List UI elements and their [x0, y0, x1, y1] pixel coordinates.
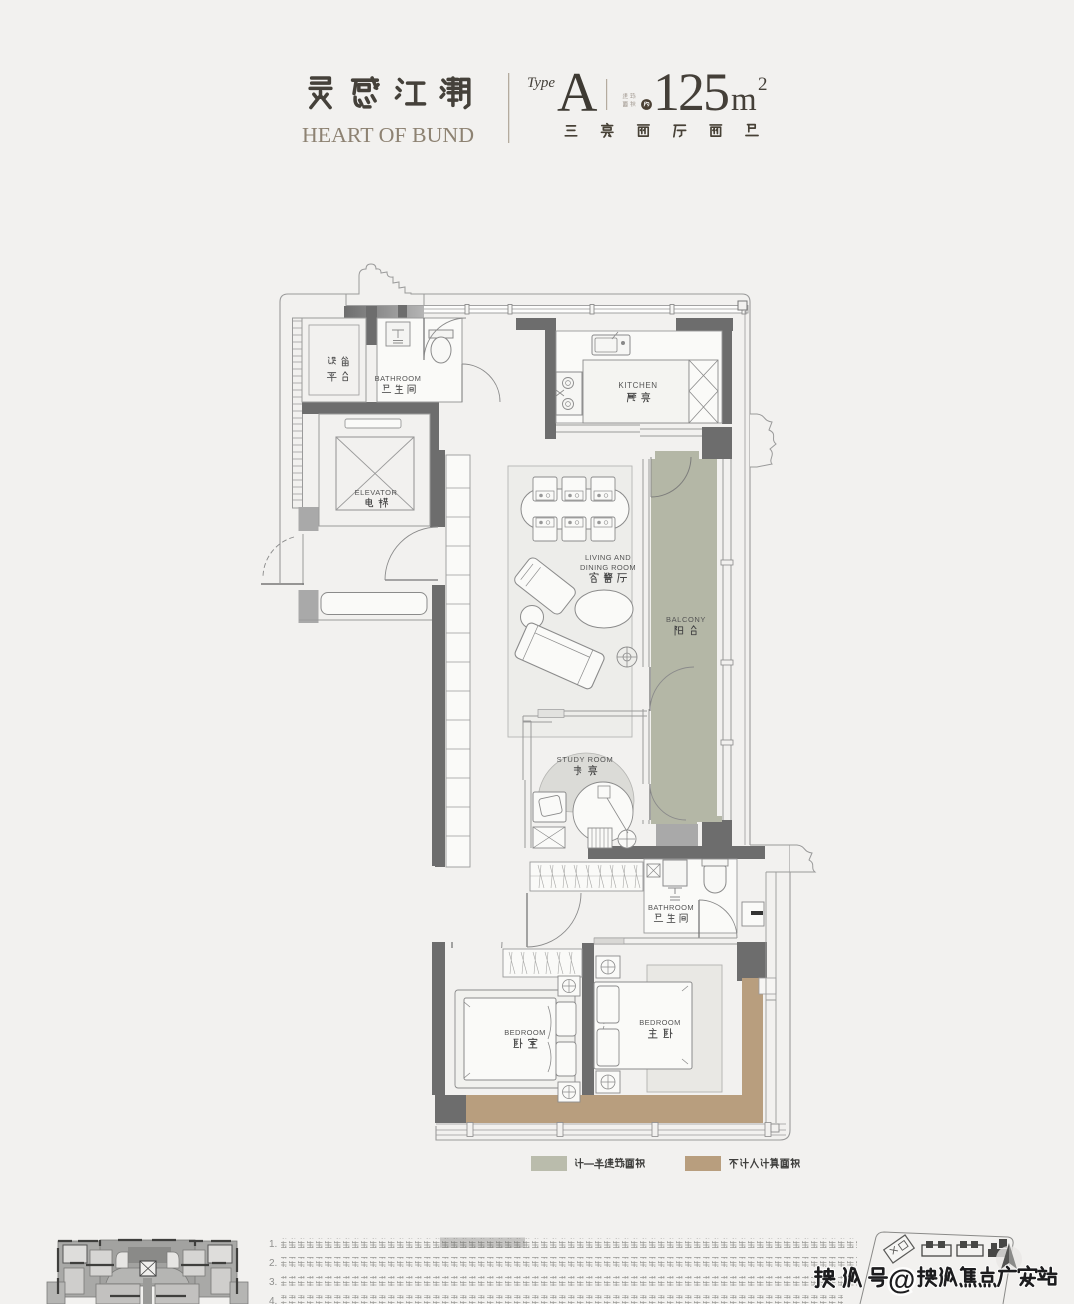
svg-text:BATHROOM: BATHROOM	[375, 374, 422, 383]
svg-text:3.: 3.	[269, 1277, 277, 1288]
svg-text:KITCHEN: KITCHEN	[618, 381, 657, 390]
svg-text:BATHROOM: BATHROOM	[648, 903, 694, 912]
svg-text:2.: 2.	[269, 1258, 277, 1269]
svg-text:2: 2	[758, 74, 768, 95]
svg-text:ELEVATOR: ELEVATOR	[355, 488, 398, 497]
svg-text:A: A	[557, 62, 598, 124]
svg-text:1.: 1.	[269, 1239, 277, 1250]
svg-text:STUDY ROOM: STUDY ROOM	[557, 755, 614, 764]
svg-text:125: 125	[653, 62, 728, 122]
svg-text:HEART OF BUND: HEART OF BUND	[302, 123, 474, 147]
svg-text:@: @	[888, 1264, 915, 1295]
svg-text:BEDROOM: BEDROOM	[639, 1018, 681, 1027]
svg-text:BALCONY: BALCONY	[666, 615, 706, 624]
svg-text:4.: 4.	[269, 1296, 277, 1304]
svg-text:Type: Type	[527, 75, 555, 91]
svg-text:DINING ROOM: DINING ROOM	[580, 563, 636, 572]
svg-text:BEDROOM: BEDROOM	[504, 1028, 546, 1037]
svg-text:LIVING AND: LIVING AND	[585, 553, 631, 562]
svg-text:m: m	[731, 82, 757, 118]
